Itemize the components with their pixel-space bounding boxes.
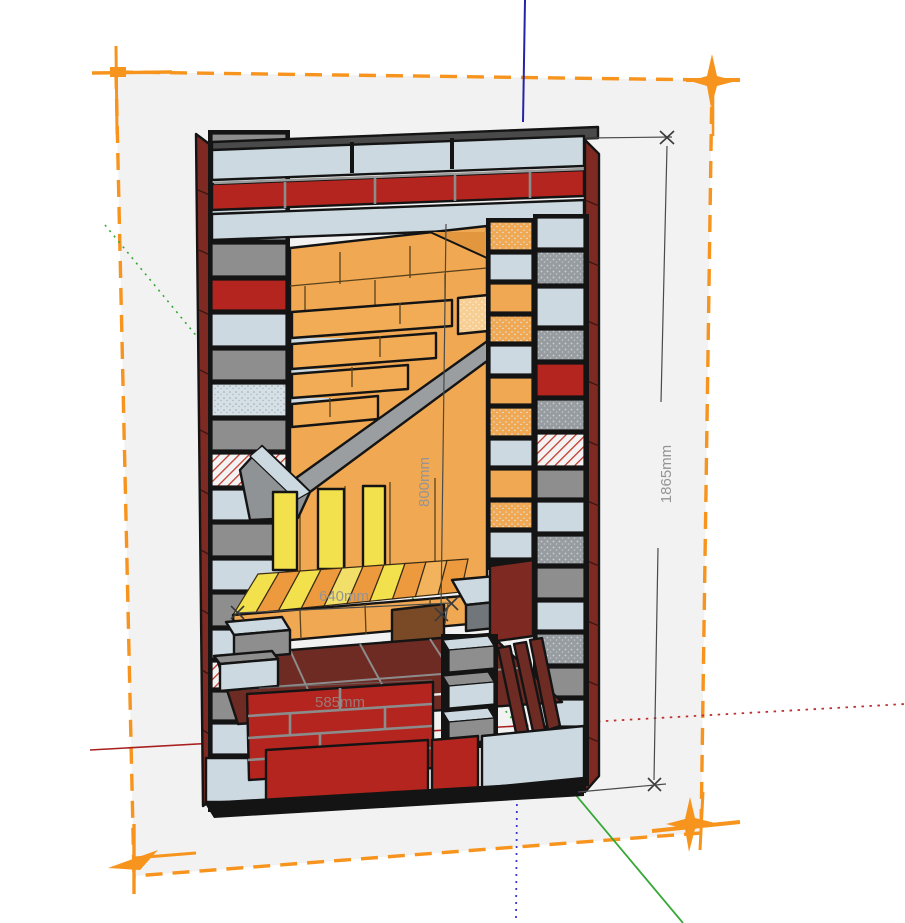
dimension-label-base-width: 585mm (315, 694, 365, 711)
dimension-label-overall-height: 1865mm (658, 445, 675, 503)
cad-viewport[interactable]: 1865mm 800mm 640mm 585mm (0, 0, 905, 923)
model-scene: 1865mm 800mm 640mm 585mm (0, 0, 905, 923)
right-inner-flue-column (486, 218, 536, 642)
ash-channel-boxes (441, 634, 498, 748)
masonry-heater-model[interactable] (196, 127, 599, 818)
dimension-label-firebox-width: 640mm (319, 588, 369, 605)
firebox-air-slots (273, 486, 385, 570)
dimension-label-firebox-height: 800mm (416, 457, 433, 507)
